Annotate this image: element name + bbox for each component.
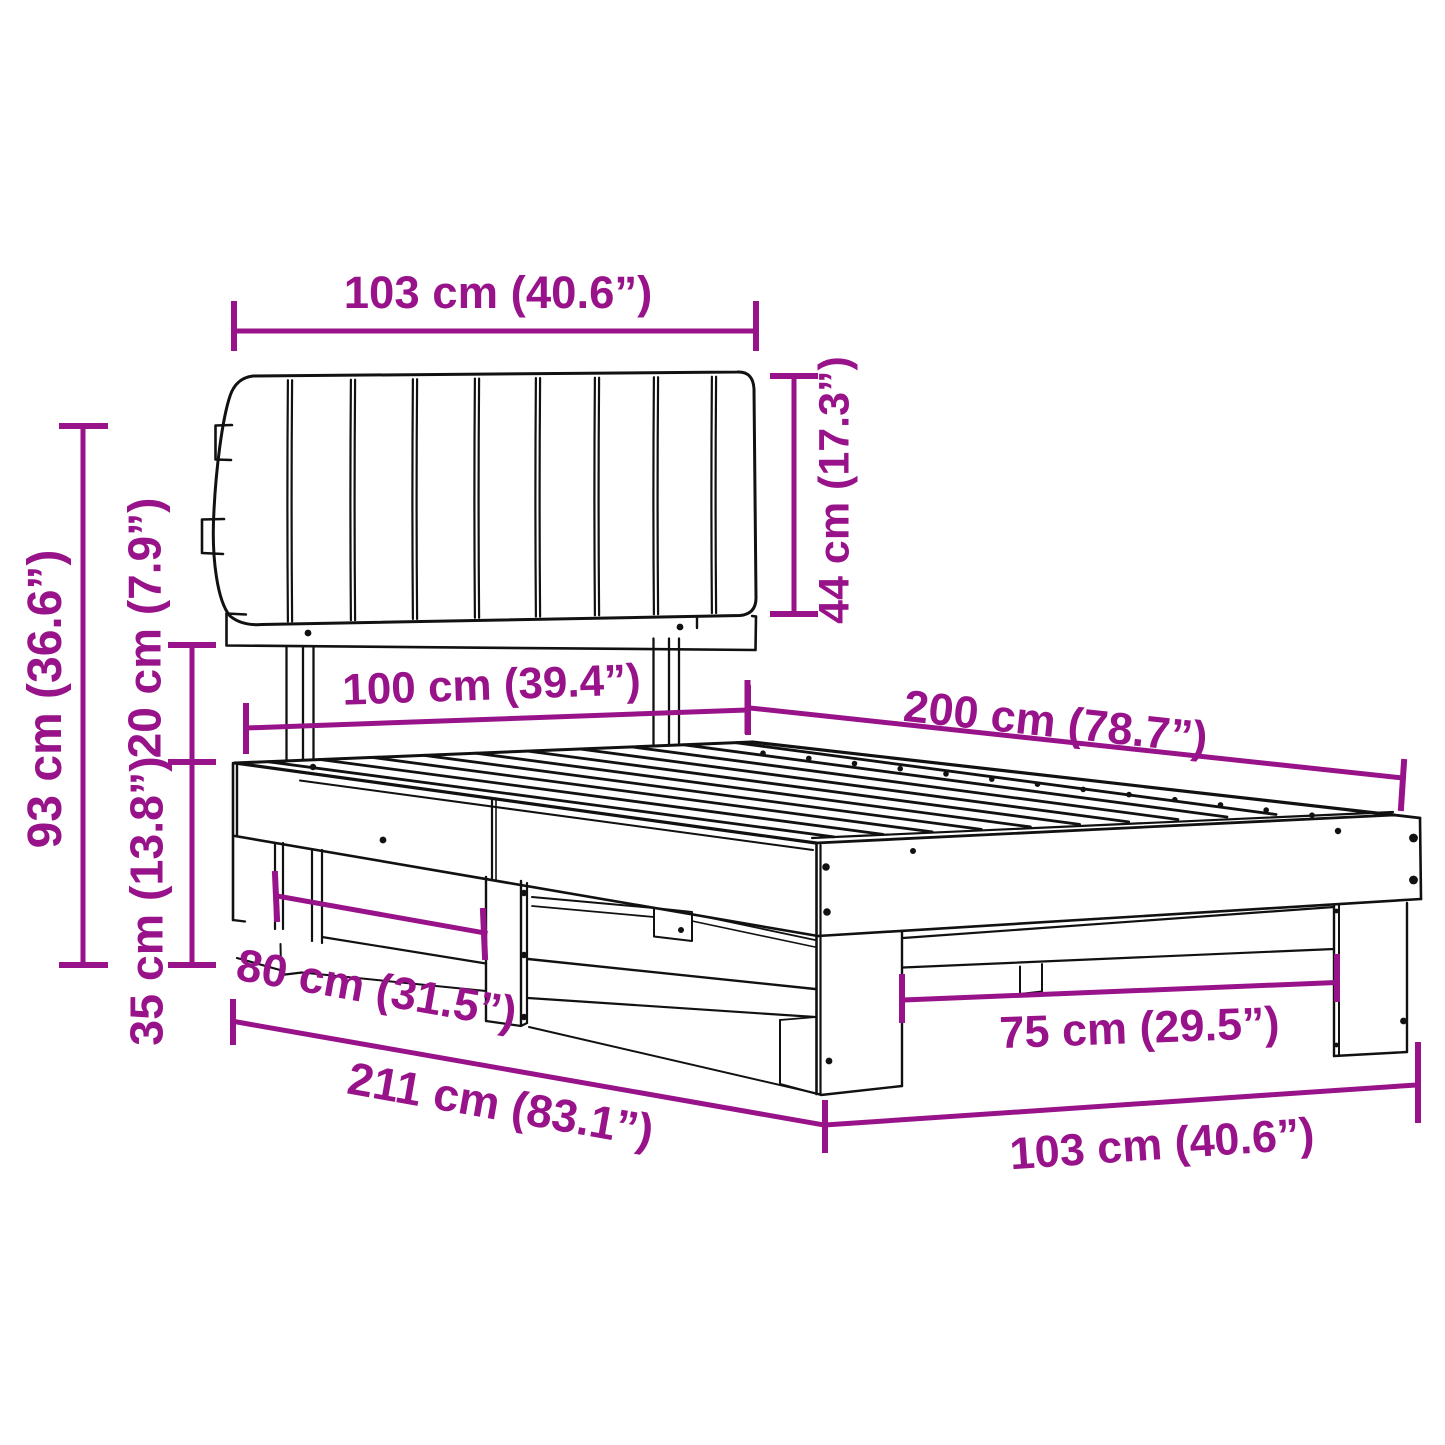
svg-text:35 cm (13.8”): 35 cm (13.8”): [121, 756, 173, 1046]
svg-text:44 cm (17.3”): 44 cm (17.3”): [810, 356, 858, 624]
svg-text:75 cm (29.5”): 75 cm (29.5”): [999, 997, 1281, 1058]
svg-text:93 cm (36.6”): 93 cm (36.6”): [19, 550, 72, 849]
svg-text:20 cm (7.9”): 20 cm (7.9”): [119, 498, 171, 759]
svg-text:100 cm (39.4”): 100 cm (39.4”): [342, 655, 642, 714]
svg-text:103 cm (40.6”): 103 cm (40.6”): [344, 267, 653, 318]
